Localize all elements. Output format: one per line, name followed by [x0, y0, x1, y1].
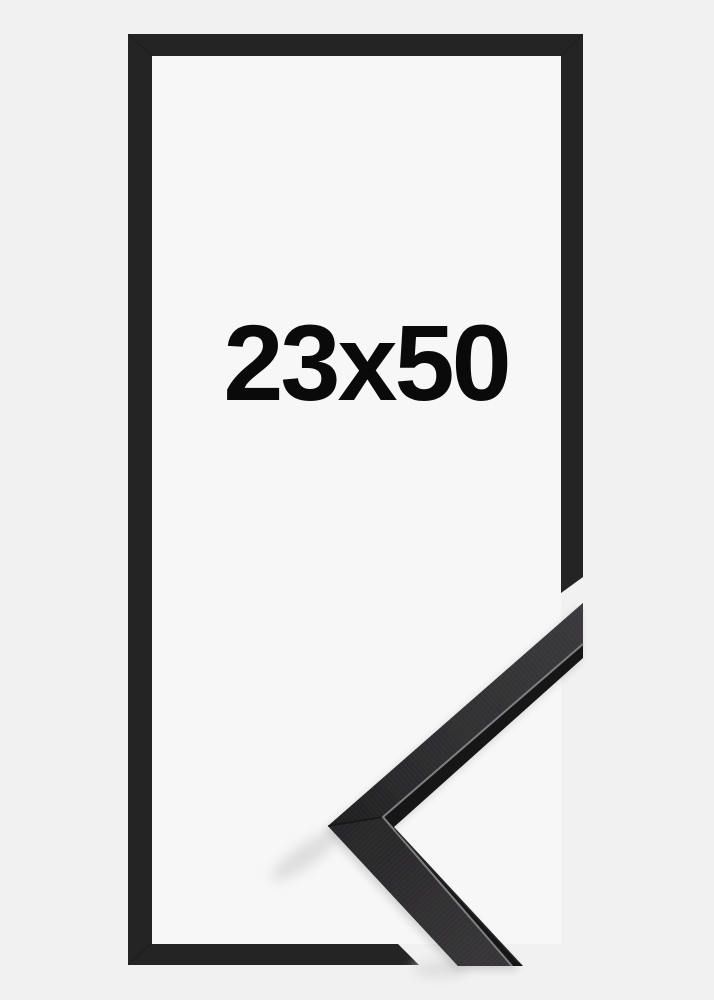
frame-outline-right-bar: [561, 34, 583, 593]
size-label: 23x50: [223, 302, 508, 423]
product-image: 23x50: [0, 0, 714, 1000]
frame-outline-left-bar: [128, 34, 152, 965]
frame-outline-bottom-bar: [128, 944, 419, 965]
frame-outline-top-bar: [128, 34, 583, 56]
